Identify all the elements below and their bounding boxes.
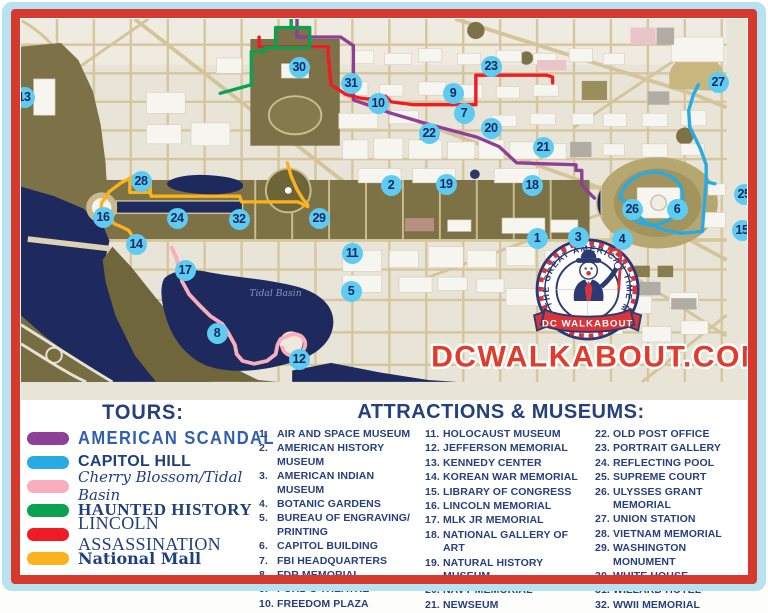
attraction-number: 6. (259, 540, 277, 553)
map-marker-29: 29 (309, 208, 330, 229)
map-marker-10: 10 (368, 93, 389, 114)
map-marker-19: 19 (436, 174, 457, 195)
attraction-item: 25.SUPREME COURT (595, 471, 743, 484)
attraction-item: 20.NAVY MEMORIAL (425, 584, 592, 597)
attractions-column: 1.AIR AND SPACE MUSEUM2.AMERICAN HISTORY… (259, 428, 422, 613)
attraction-item: 21.NEWSEUM (425, 599, 592, 612)
tours-heading: TOURS: (33, 401, 253, 425)
attraction-name: ULYSSES GRANT MEMORIAL (613, 486, 743, 513)
map-marker-4: 4 (612, 229, 633, 250)
attraction-item: 7.FBI HEADQUARTERS (259, 555, 422, 568)
map-marker-32: 32 (229, 209, 250, 230)
attraction-item: 16.LINCOLN MEMORIAL (425, 500, 592, 513)
map-marker-12: 12 (289, 349, 310, 370)
attraction-name: PORTRAIT GALLERY (613, 442, 743, 455)
attraction-name: BUREAU OF ENGRAVING/ PRINTING (277, 512, 422, 539)
attraction-name: FBI HEADQUARTERS (277, 555, 422, 568)
attraction-item: 17.MLK JR MEMORIAL (425, 514, 592, 527)
map-marker-31: 31 (341, 73, 362, 94)
tour-label: National Mall (78, 549, 201, 568)
map-marker-2: 2 (381, 175, 402, 196)
attraction-name: AMERICAN HISTORY MUSEUM (277, 442, 422, 469)
tour-color-swatch (27, 480, 69, 493)
attraction-number: 17. (425, 514, 443, 527)
attraction-number: 3. (259, 470, 277, 497)
attraction-number: 25. (595, 471, 613, 484)
map-marker-5: 5 (341, 281, 362, 302)
attraction-name: UNION STATION (613, 513, 743, 526)
attraction-item: 19.NATURAL HISTORY MUSEUM (425, 557, 592, 584)
attraction-name: NEWSEUM (443, 599, 592, 612)
attraction-name: AIR AND SPACE MUSEUM (277, 428, 422, 441)
tidal-basin-label: Tidal Basin (249, 289, 301, 299)
attraction-name: NATURAL HISTORY MUSEUM (443, 557, 592, 584)
attraction-number: 27. (595, 513, 613, 526)
attraction-number: 23. (595, 442, 613, 455)
tours-legend: TOURS: AMERICAN SCANDALCAPITOL HILLCherr… (27, 401, 259, 572)
attraction-name: NATIONAL GALLERY OF ART (443, 529, 592, 556)
map-marker-9: 9 (443, 83, 464, 104)
map-marker-1: 1 (527, 228, 548, 249)
map-marker-16: 16 (93, 207, 114, 228)
attraction-number: 26. (595, 486, 613, 513)
attraction-name: BOTANIC GARDENS (277, 498, 422, 511)
tour-color-swatch (27, 504, 69, 517)
attraction-number: 12. (425, 442, 443, 455)
attraction-name: HOLOCAUST MUSEUM (443, 428, 592, 441)
attraction-item: 4.BOTANIC GARDENS (259, 498, 422, 511)
attraction-name: VIETNAM MEMORIAL (613, 528, 743, 541)
attraction-name: REFLECTING POOL (613, 457, 743, 470)
attraction-name: JEFFERSON MEMORIAL (443, 442, 592, 455)
dc-map: Tidal Basin THE GREAT AMERICAN TIME MACH… (21, 19, 747, 400)
attraction-item: 13.KENNEDY CENTER (425, 457, 592, 470)
attractions-column: 11.HOLOCAUST MUSEUM12.JEFFERSON MEMORIAL… (425, 428, 592, 613)
attraction-number: 5. (259, 512, 277, 539)
badge-character-face (580, 262, 597, 279)
attraction-item: 15.LIBRARY OF CONGRESS (425, 486, 592, 499)
attraction-number: 14. (425, 471, 443, 484)
attraction-item: 18.NATIONAL GALLERY OF ART (425, 529, 592, 556)
attraction-item: 26.ULYSSES GRANT MEMORIAL (595, 486, 743, 513)
attractions-heading: ATTRACTIONS & MUSEUMS: (259, 401, 743, 424)
map-marker-14: 14 (126, 234, 147, 255)
map-marker-6: 6 (667, 199, 688, 220)
map-marker-15: 15 (732, 220, 748, 241)
map-marker-3: 3 (568, 227, 589, 248)
attraction-item: 10.FREEDOM PLAZA (259, 598, 422, 611)
tours-list: AMERICAN SCANDALCAPITOL HILLCherry Bloss… (27, 428, 259, 568)
tour-row-2: Cherry Blossom/Tidal Basin (27, 476, 259, 496)
attraction-number: 13. (425, 457, 443, 470)
attraction-number: 11. (425, 428, 443, 441)
attraction-number: 29. (595, 542, 613, 569)
attraction-item: 12.JEFFERSON MEMORIAL (425, 442, 592, 455)
attraction-number: 18. (425, 529, 443, 556)
legend: TOURS: AMERICAN SCANDALCAPITOL HILLCherr… (21, 400, 747, 575)
attraction-name: FDR MEMORIAL (277, 569, 422, 582)
map-marker-22: 22 (419, 123, 440, 144)
attraction-number: 21. (425, 599, 443, 612)
tour-color-swatch (27, 432, 69, 445)
attraction-name: LINCOLN MEMORIAL (443, 500, 592, 513)
attraction-number: 31. (595, 584, 613, 597)
attraction-number: 28. (595, 528, 613, 541)
attraction-number: 7. (259, 555, 277, 568)
map-marker-26: 26 (622, 199, 643, 220)
map-marker-28: 28 (131, 171, 152, 192)
attraction-item: 27.UNION STATION (595, 513, 743, 526)
map-marker-24: 24 (167, 208, 188, 229)
attraction-name: AMERICAN INDIAN MUSEUM (277, 470, 422, 497)
attraction-number: 4. (259, 498, 277, 511)
attraction-name: CAPITOL BUILDING (277, 540, 422, 553)
attraction-number: 10. (259, 598, 277, 611)
attraction-item: 29.WASHINGTON MONUMENT (595, 542, 743, 569)
attraction-item: 3.AMERICAN INDIAN MUSEUM (259, 470, 422, 497)
map-marker-7: 7 (454, 103, 475, 124)
attraction-item: 28.VIETNAM MEMORIAL (595, 528, 743, 541)
attraction-number: 22. (595, 428, 613, 441)
attraction-number: 8. (259, 569, 277, 582)
attraction-item: 24.REFLECTING POOL (595, 457, 743, 470)
badge-banner-text: DC WALKABOUT (542, 319, 633, 330)
attraction-number: 1. (259, 428, 277, 441)
attraction-item: 32.WWII MEMORIAL (595, 599, 743, 612)
tour-row-4: LINCOLN ASSASSINATION (27, 524, 259, 544)
map-marker-18: 18 (522, 175, 543, 196)
map-marker-27: 27 (708, 72, 729, 93)
attractions-legend: ATTRACTIONS & MUSEUMS: 1.AIR AND SPACE M… (259, 401, 743, 613)
map-marker-23: 23 (481, 56, 502, 77)
attraction-item: 11.HOLOCAUST MUSEUM (425, 428, 592, 441)
attraction-item: 23.PORTRAIT GALLERY (595, 442, 743, 455)
map-marker-17: 17 (175, 260, 196, 281)
attractions-columns: 1.AIR AND SPACE MUSEUM2.AMERICAN HISTORY… (259, 428, 743, 613)
map-marker-8: 8 (207, 323, 228, 344)
attraction-item: 1.AIR AND SPACE MUSEUM (259, 428, 422, 441)
map-marker-11: 11 (342, 243, 363, 264)
badge-character-hat (576, 258, 601, 263)
attraction-name: WWII MEMORIAL (613, 599, 743, 612)
attraction-number: 16. (425, 500, 443, 513)
attraction-name: MLK JR MEMORIAL (443, 514, 592, 527)
attraction-number: 15. (425, 486, 443, 499)
website-url-text: DCWALKABOUT.COM (431, 341, 747, 374)
tour-label: Cherry Blossom/Tidal Basin (78, 468, 259, 504)
attraction-item: 30.WHITE HOUSE (595, 570, 743, 583)
tour-label: AMERICAN SCANDAL (78, 428, 275, 449)
attraction-item: 6.CAPITOL BUILDING (259, 540, 422, 553)
map-marker-30: 30 (289, 57, 310, 78)
map-marker-20: 20 (481, 118, 502, 139)
attraction-name: SUPREME COURT (613, 471, 743, 484)
attraction-name: FREEDOM PLAZA (277, 598, 422, 611)
attraction-number: 2. (259, 442, 277, 469)
map-marker-21: 21 (533, 137, 554, 158)
attraction-item: 5.BUREAU OF ENGRAVING/ PRINTING (259, 512, 422, 539)
attraction-name: WILLARD HOTEL (613, 584, 743, 597)
attraction-name: NAVY MEMORIAL (443, 584, 592, 597)
attraction-item: 2.AMERICAN HISTORY MUSEUM (259, 442, 422, 469)
attraction-number: 30. (595, 570, 613, 583)
attraction-item: 9.FORD'S THEATRE (259, 583, 422, 596)
attraction-name: WHITE HOUSE (613, 570, 743, 583)
tour-color-swatch (27, 552, 69, 565)
attraction-name: KOREAN WAR MEMORIAL (443, 471, 592, 484)
attraction-item: 14.KOREAN WAR MEMORIAL (425, 471, 592, 484)
attraction-name: FORD'S THEATRE (277, 583, 422, 596)
tour-color-swatch (27, 528, 69, 541)
attraction-item: 31.WILLARD HOTEL (595, 584, 743, 597)
attraction-name: LIBRARY OF CONGRESS (443, 486, 592, 499)
attraction-name: OLD POST OFFICE (613, 428, 743, 441)
attraction-number: 20. (425, 584, 443, 597)
attractions-column: 22.OLD POST OFFICE23.PORTRAIT GALLERY24.… (595, 428, 743, 613)
attraction-item: 22.OLD POST OFFICE (595, 428, 743, 441)
tour-color-swatch (27, 456, 69, 469)
attraction-number: 32. (595, 599, 613, 612)
attraction-item: 8.FDR MEMORIAL (259, 569, 422, 582)
tour-row-0: AMERICAN SCANDAL (27, 428, 259, 448)
dc-walkabout-map-poster: { "frame": {"outer_color": "#b7e2f0", "i… (0, 0, 768, 593)
attraction-name: KENNEDY CENTER (443, 457, 592, 470)
attraction-number: 19. (425, 557, 443, 584)
attraction-number: 9. (259, 583, 277, 596)
attraction-number: 24. (595, 457, 613, 470)
attraction-name: WASHINGTON MONUMENT (613, 542, 743, 569)
